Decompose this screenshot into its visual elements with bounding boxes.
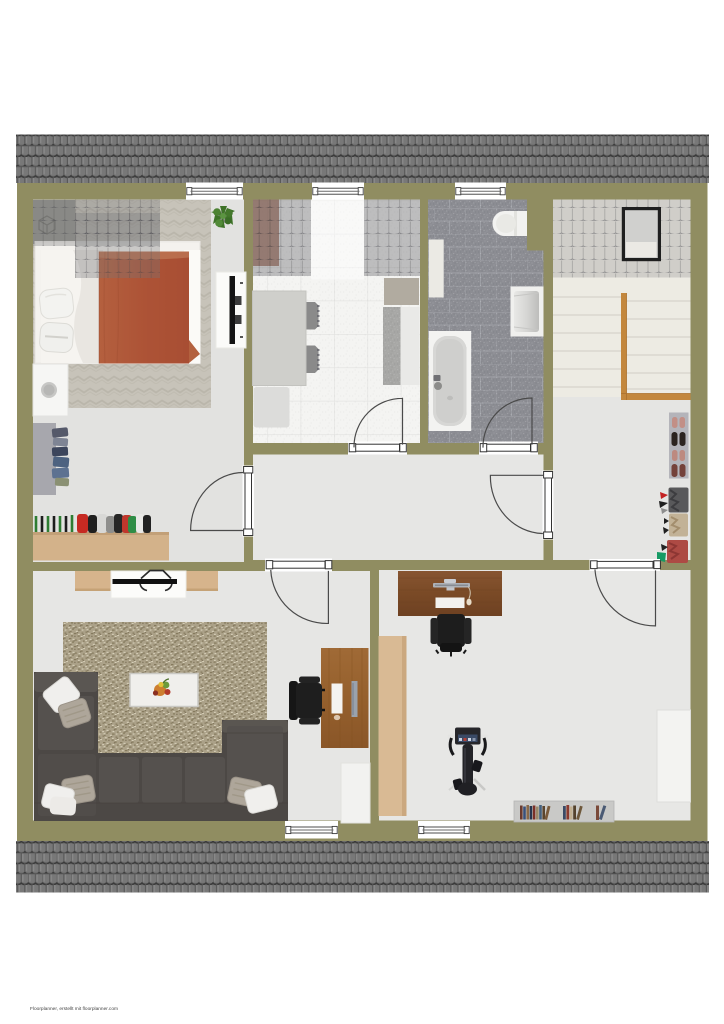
- svg-text:Floorplanner, erstellt mit flo: Floorplanner, erstellt mit floorplanner.…: [30, 1006, 118, 1012]
